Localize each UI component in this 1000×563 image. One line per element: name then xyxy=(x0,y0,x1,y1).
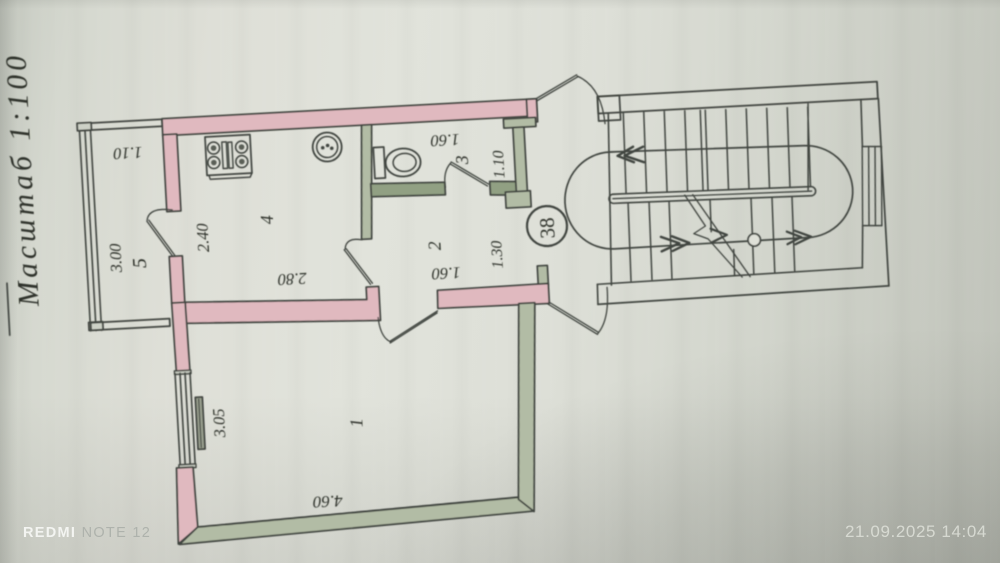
svg-text:4.60: 4.60 xyxy=(312,491,343,512)
svg-text:2: 2 xyxy=(424,241,444,251)
svg-text:1.60: 1.60 xyxy=(429,130,460,151)
svg-text:3.00: 3.00 xyxy=(105,242,126,274)
svg-text:5: 5 xyxy=(129,258,152,269)
svg-text:1.30: 1.30 xyxy=(489,240,507,269)
svg-text:2.80: 2.80 xyxy=(276,269,307,290)
svg-text:Масштаб 1:100: Масштаб 1:100 xyxy=(0,51,46,308)
svg-text:38: 38 xyxy=(535,217,560,239)
svg-text:1: 1 xyxy=(346,418,366,428)
svg-text:3.05: 3.05 xyxy=(209,408,230,439)
svg-text:2.40: 2.40 xyxy=(192,222,213,253)
svg-text:1.10: 1.10 xyxy=(490,150,508,179)
svg-text:1.10: 1.10 xyxy=(112,143,143,164)
svg-text:4: 4 xyxy=(257,215,277,225)
svg-text:3: 3 xyxy=(452,155,473,166)
svg-text:1.60: 1.60 xyxy=(430,263,461,284)
